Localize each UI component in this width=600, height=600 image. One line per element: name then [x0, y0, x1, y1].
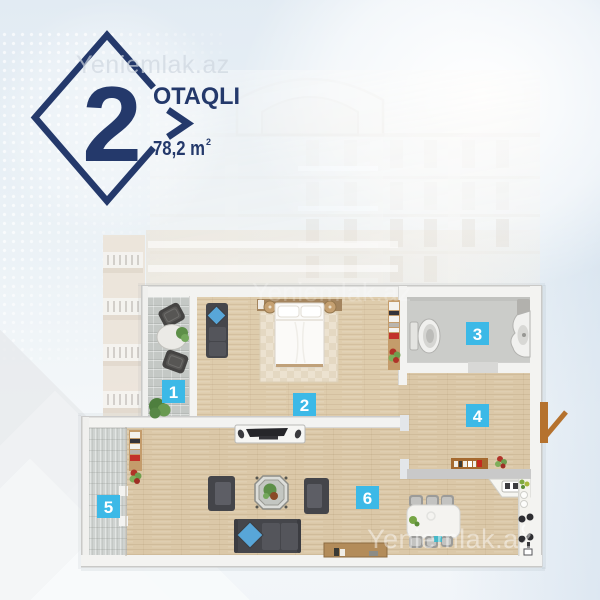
svg-text:6: 6: [363, 489, 372, 508]
svg-text:4: 4: [473, 407, 483, 426]
svg-text:1: 1: [169, 383, 178, 402]
svg-text:OTAQLI: OTAQLI: [153, 83, 240, 110]
svg-text:2: 2: [300, 396, 309, 415]
svg-text:2: 2: [206, 137, 211, 147]
svg-text:3: 3: [473, 325, 482, 344]
svg-text:Yeniemlak.az: Yeniemlak.az: [367, 524, 533, 554]
svg-text:Yeniemlak.az: Yeniemlak.az: [252, 277, 412, 307]
svg-text:5: 5: [104, 498, 113, 517]
svg-text:2: 2: [82, 64, 142, 184]
svg-text:Yeniemlak.az: Yeniemlak.az: [76, 51, 230, 79]
svg-text:78,2 m: 78,2 m: [153, 138, 205, 160]
